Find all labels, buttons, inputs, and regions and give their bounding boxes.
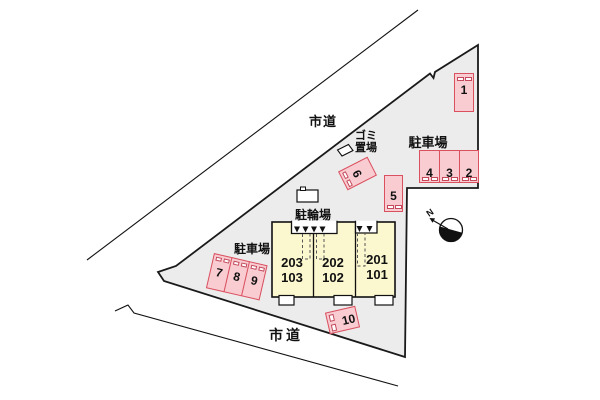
unit-label-202-102: 202 102 (312, 255, 354, 285)
parking-area-label-right: 駐車場 (404, 132, 452, 151)
unit-label-201-101: 201 101 (356, 252, 398, 282)
bicycle-area-label: 駐輪場 (290, 206, 336, 223)
trash-area-label-line2: 置場 (355, 142, 377, 154)
road-label-bottom: 市道 (258, 325, 314, 345)
trash-area-label: ゴミ 置場 (352, 131, 380, 154)
unit-lower: 101 (356, 267, 398, 282)
unit-label-203-103: 203 103 (271, 255, 313, 285)
trash-area-label-line1: ゴミ (355, 130, 377, 142)
unit-upper: 201 (356, 252, 398, 267)
site-plan: 1 4 3 2 5 6 7 8 (0, 0, 600, 400)
parking-area-label-left: 駐車場 (230, 240, 274, 257)
unit-upper: 203 (271, 255, 313, 270)
north-compass-icon: N (424, 207, 462, 242)
compass-n-label: N (424, 207, 435, 219)
trash-area-icon (338, 145, 354, 157)
bicycle-shed-door-icon (301, 187, 306, 191)
unit-upper: 202 (312, 255, 354, 270)
bicycle-shed-icon (297, 190, 318, 202)
road-label-top: 市道 (299, 111, 347, 130)
unit-lower: 102 (312, 270, 354, 285)
unit-lower: 103 (271, 270, 313, 285)
